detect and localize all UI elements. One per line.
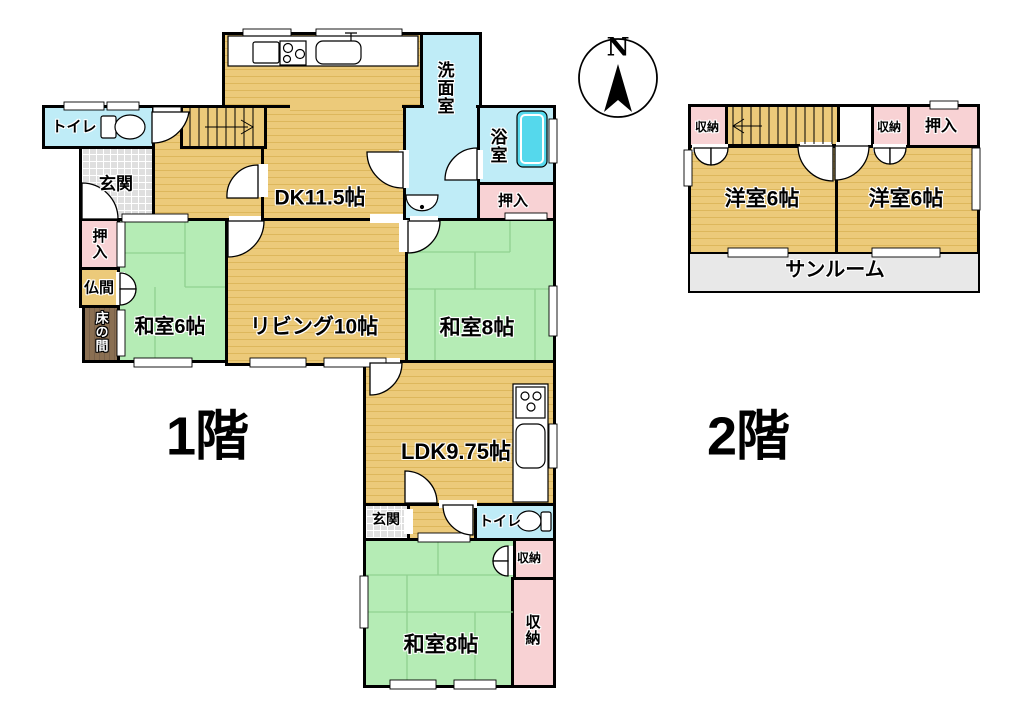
label-genkan-1: 玄関: [99, 176, 133, 193]
label-washroom: 洗面室: [436, 61, 453, 115]
label-2f-shuno-left: 収納: [695, 121, 719, 133]
floor1-title: 1階: [166, 392, 248, 471]
room-dk-kitchen: [222, 32, 423, 112]
label-dk: DK11.5帖: [274, 188, 365, 209]
label-washitsu8-lower: 和室8帖: [404, 635, 479, 656]
stairs-1f: [180, 105, 267, 149]
label-living: リビング10帖: [250, 317, 378, 338]
label-toilet-2: トイレ: [479, 514, 521, 528]
label-genkan-2: 玄関: [372, 512, 400, 526]
label-oshiire-bath: 押入: [498, 194, 528, 209]
room-washitsu8-lower: [363, 538, 516, 688]
label-tokonoma: 床の間: [95, 311, 108, 353]
label-sunroom: サンルーム: [785, 260, 884, 280]
floor-plan: トイレ 玄関 DK11.5帖 洗面室 浴室 押入 押入 仏間 床の間 和室6帖 …: [0, 0, 1024, 715]
north-label: N: [607, 33, 630, 62]
stairs-2f: [725, 104, 840, 147]
label-2f-oshiire: 押入: [925, 119, 957, 135]
label-washitsu8-upper: 和室8帖: [440, 318, 515, 339]
label-shuno-tall: 収納: [525, 614, 540, 646]
label-ldk: LDK9.75帖: [401, 441, 511, 463]
room-living: [225, 218, 408, 366]
floor2-title: 2階: [707, 392, 789, 471]
room-2f-hall: [837, 104, 874, 148]
room-ldk: [363, 360, 556, 506]
label-yoshitsu-right: 洋室6帖: [869, 189, 944, 210]
room-washroom-lower: [403, 105, 482, 221]
room-washitsu6: [117, 218, 228, 363]
label-bathroom: 浴室: [489, 128, 506, 164]
label-washitsu6: 和室6帖: [134, 317, 205, 337]
room-entry-hall-south: [407, 503, 477, 541]
label-yoshitsu-left: 洋室6帖: [725, 189, 800, 210]
label-toilet-1: トイレ: [51, 120, 96, 135]
label-2f-shuno-mid: 収納: [877, 121, 901, 133]
label-butsuma: 仏間: [84, 281, 114, 296]
label-oshiire-left: 押入: [92, 228, 107, 260]
dk-floor-patch: [290, 104, 402, 114]
room-washitsu8-upper: [405, 218, 556, 363]
label-shuno-small: 収納: [517, 552, 541, 564]
